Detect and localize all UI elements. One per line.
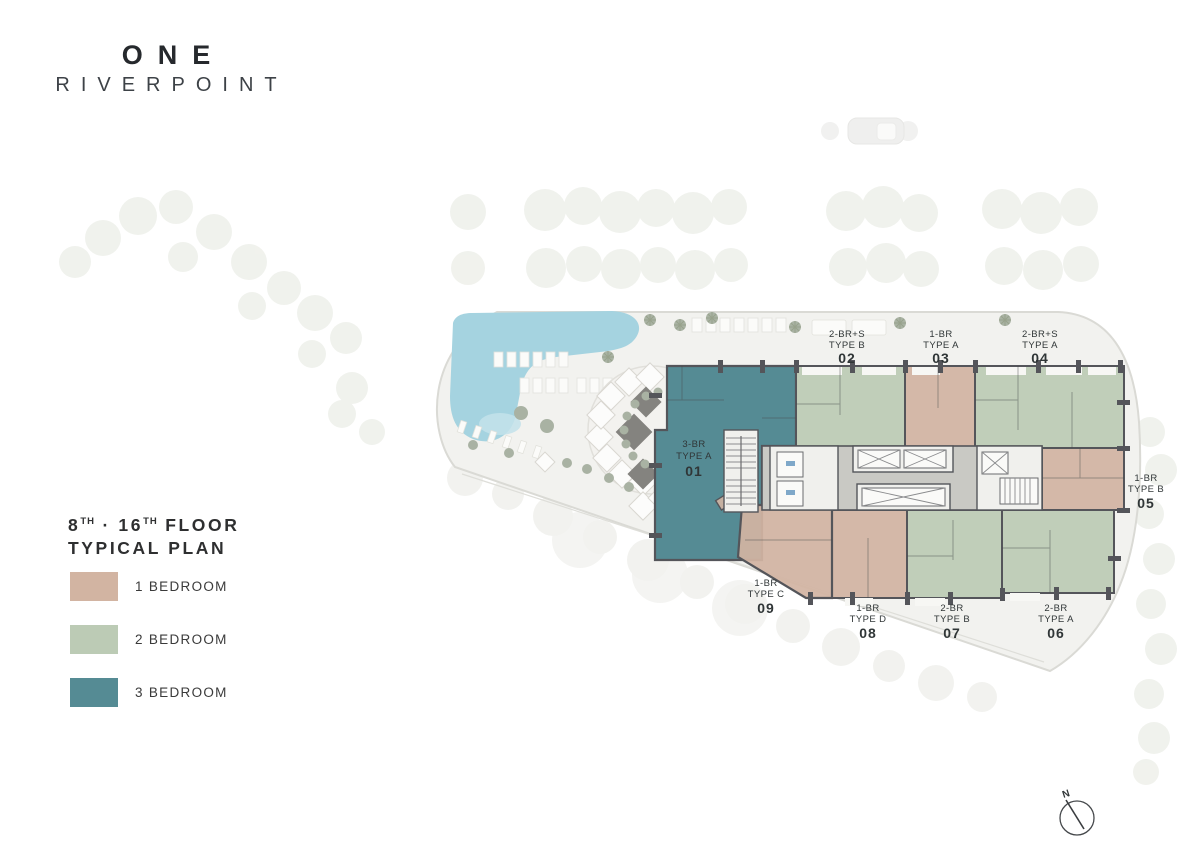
legend-swatch-1-bedroom [70,572,118,601]
svg-text:05: 05 [1137,495,1155,511]
elevator-core-top [853,446,953,472]
unit-06-shape[interactable] [1002,510,1114,593]
svg-text:09: 09 [757,600,775,616]
car-icon [821,118,918,144]
svg-text:TYPE C: TYPE C [748,589,785,600]
svg-text:TYPE B: TYPE B [934,614,970,625]
svg-text:2-BR: 2-BR [1044,603,1067,614]
stair-icon-unit01 [724,430,758,512]
unit-08-shape[interactable] [832,510,907,598]
elevator-core-left [770,446,838,510]
svg-text:2-BR+S: 2-BR+S [1022,329,1058,340]
svg-text:1-BR: 1-BR [754,578,777,589]
building [649,360,1130,606]
svg-text:TYPE D: TYPE D [850,614,887,625]
plan-title-line1: 8TH · 16TH FLOOR [68,510,239,537]
svg-text:1-BR: 1-BR [929,329,952,340]
north-label: N [1061,788,1071,801]
legend-row-1-bedroom: 1 BEDROOM [70,572,228,601]
svg-text:1-BR: 1-BR [856,603,879,614]
legend-label-3-bedroom: 3 BEDROOM [135,685,228,700]
unit-03-shape[interactable] [905,366,975,448]
legend: 1 BEDROOM 2 BEDROOM 3 BEDROOM [70,572,228,731]
svg-text:2-BR: 2-BR [940,603,963,614]
brand-logo: ONE RIVERPOINT [42,40,292,97]
unit-05-shape[interactable] [1042,448,1124,510]
legend-swatch-2-bedroom [70,625,118,654]
svg-text:06: 06 [1047,625,1065,641]
svg-text:2-BR+S: 2-BR+S [829,329,865,340]
svg-text:01: 01 [685,463,703,479]
elevator-core-bottom [857,484,950,510]
unit-02-shape[interactable] [796,366,905,448]
unit-07-shape[interactable] [907,510,1002,598]
unit-04-shape[interactable] [975,366,1124,448]
brand-line-riverpoint: RIVERPOINT [42,74,292,97]
legend-label-1-bedroom: 1 BEDROOM [135,579,228,594]
svg-text:TYPE A: TYPE A [676,451,712,462]
legend-row-3-bedroom: 3 BEDROOM [70,678,228,707]
legend-label-2-bedroom: 2 BEDROOM [135,632,228,647]
stair-icon [1000,478,1038,504]
legend-swatch-3-bedroom [70,678,118,707]
svg-text:02: 02 [838,350,856,366]
svg-text:1-BR: 1-BR [1134,473,1157,484]
compass: N [1060,788,1094,835]
compass-needle [1066,800,1084,829]
svg-text:3-BR: 3-BR [682,439,705,450]
svg-text:07: 07 [943,625,961,641]
svg-text:TYPE A: TYPE A [1038,614,1074,625]
stair-core-right [977,446,1042,510]
plan-title: 8TH · 16TH FLOOR TYPICAL PLAN [68,510,239,560]
svg-text:08: 08 [859,625,877,641]
svg-text:04: 04 [1031,350,1049,366]
svg-text:TYPE B: TYPE B [1128,484,1164,495]
brand-line-one: ONE [42,40,292,71]
svg-text:03: 03 [932,350,950,366]
legend-row-2-bedroom: 2 BEDROOM [70,625,228,654]
plan-title-line2: TYPICAL PLAN [68,537,239,560]
